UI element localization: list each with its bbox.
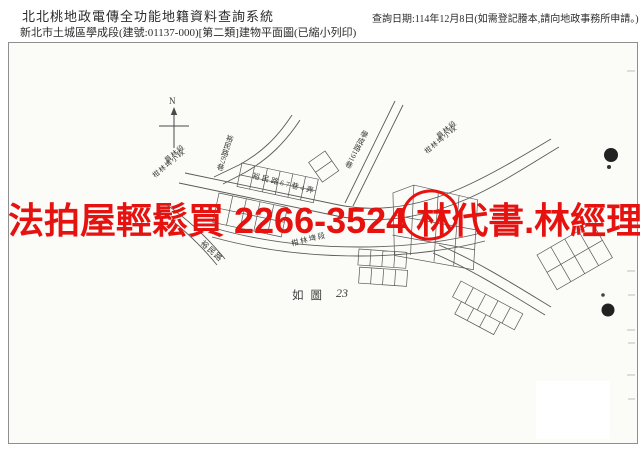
north-label: N bbox=[169, 96, 176, 106]
figure-caption: 如圖 bbox=[292, 288, 329, 302]
document-title: 新北市土城區學成段(建號:01137-000)[第二類]建物平面圖(已縮小列印) bbox=[20, 24, 356, 40]
svg-text:柑林埤小段: 柑林埤小段 bbox=[151, 147, 187, 180]
subject-parcel-circle-annotation bbox=[400, 187, 460, 242]
road-label-yumin-lane-67: 裕民路67巷 bbox=[215, 132, 236, 172]
query-date-note: 查詢日期:114年12月8日(如需登記謄本,請向地政事務所申請。) bbox=[372, 10, 639, 25]
road-label-xuecheng-lane-191: 學成路191巷 bbox=[343, 128, 371, 170]
section-label-right: 員林段 柑林埤小段 bbox=[423, 118, 459, 155]
land-query-report-page: { "header": { "system_title": "北北桃地政電傳全功… bbox=[0, 0, 640, 450]
figure-number: 23 bbox=[336, 286, 348, 300]
scanned-map-frame: N bbox=[8, 42, 638, 444]
cadastral-map-svg: N bbox=[9, 43, 637, 443]
system-title: 北北桃地政電傳全功能地籍資料查詢系統 bbox=[22, 6, 274, 25]
svg-text:柑林埤小段: 柑林埤小段 bbox=[423, 123, 459, 156]
section-label-left: 員林段 柑林埤小段 bbox=[151, 142, 187, 179]
scan-artifacts bbox=[536, 71, 635, 439]
north-arrow-icon bbox=[159, 107, 189, 148]
